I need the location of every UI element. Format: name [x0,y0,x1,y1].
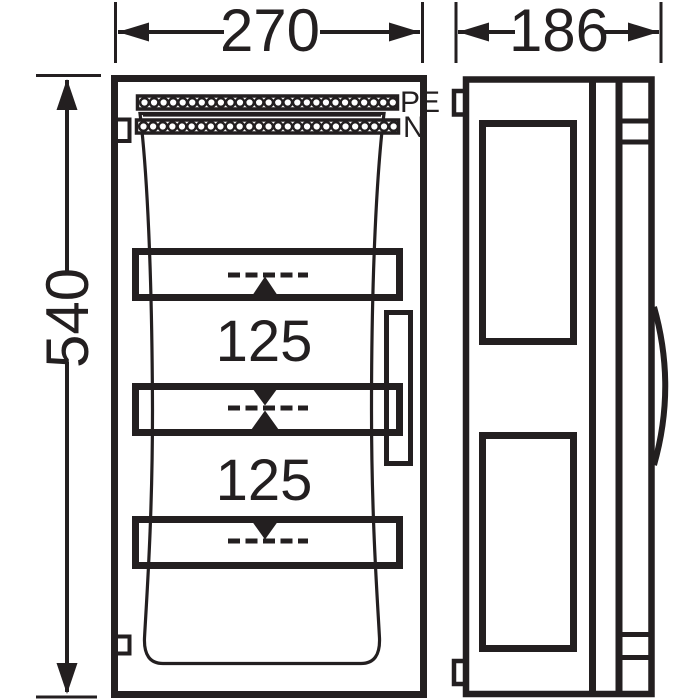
terminal-hole-icon [274,122,283,131]
dimension-value-186: 186 [509,0,609,64]
terminal-hole-icon [350,98,359,107]
terminal-hole-icon [168,122,177,131]
terminal-hole-icon [264,122,273,131]
terminal-hole-icon [283,98,292,107]
terminal-hole-icon [369,98,378,107]
rail-spacing-value-bottom: 125 [216,448,313,513]
terminal-hole-icon [178,122,187,131]
terminal-hole-icon [255,122,264,131]
rail-spacing-value-top: 125 [216,309,313,374]
terminal-hole-icon [235,122,244,131]
arrow-left-icon [458,23,489,42]
side-view [454,80,665,695]
terminal-hole-icon [158,122,167,131]
arrow-down-icon [57,663,78,694]
enclosure-drawing-svg: 270 186 540 [0,0,700,700]
terminal-hole-icon [245,98,254,107]
terminal-hole-icon [303,122,312,131]
dimension-front-width: 270 [116,0,423,64]
side-window-top [483,124,574,342]
terminal-hole-icon [293,122,302,131]
terminal-hole-icon [217,98,226,107]
arrow-down-icon [250,519,280,540]
arrow-left-icon [118,23,149,42]
n-terminal-holes [139,122,398,131]
terminal-hole-icon [216,122,225,131]
terminal-hole-icon [207,98,216,107]
terminal-hole-icon [322,98,331,107]
terminal-hole-icon [370,122,379,131]
terminal-strip-pe [138,96,398,109]
terminal-hole-icon [284,122,293,131]
terminal-hole-icon [150,98,159,107]
terminal-hole-icon [389,98,398,107]
terminal-hole-icon [303,98,312,107]
door-handle [654,307,665,465]
pe-terminal-holes [140,98,397,107]
terminal-hole-icon [274,98,283,107]
terminal-hole-icon [149,122,158,131]
terminal-hole-icon [360,98,369,107]
terminal-hole-icon [332,122,341,131]
terminal-hole-icon [207,122,216,131]
technical-drawing: 270 186 540 [0,0,700,700]
dimension-value-540: 540 [34,268,101,368]
dimension-front-height: 540 [34,76,101,698]
terminal-hole-icon [380,122,389,131]
side-window-bottom [483,436,574,649]
terminal-hole-icon [187,122,196,131]
terminal-hole-icon [312,98,321,107]
terminal-hole-icon [188,98,197,107]
terminal-hole-icon [341,122,350,131]
arrow-right-icon [389,23,420,42]
dimension-side-depth: 186 [456,0,661,64]
hinge-tab-top [118,120,130,142]
terminal-hole-icon [351,122,360,131]
terminal-hole-icon [360,122,369,131]
terminal-hole-icon [159,98,168,107]
side-body-outline [466,80,652,695]
terminal-hole-icon [312,122,321,131]
terminal-hole-icon [245,122,254,131]
terminal-hole-icon [379,98,388,107]
front-view: PE N 125 125 [115,79,441,695]
terminal-hole-icon [255,98,264,107]
arrow-down-icon [250,385,280,406]
terminal-hole-icon [322,122,331,131]
arrow-up-icon [250,277,280,300]
terminal-hole-icon [140,98,149,107]
n-label: N [403,111,425,144]
arrow-up-icon [250,411,280,432]
terminal-hole-icon [293,98,302,107]
terminal-hole-icon [331,98,340,107]
terminal-hole-icon [226,122,235,131]
terminal-hole-icon [197,122,206,131]
terminal-hole-icon [198,98,207,107]
terminal-hole-icon [169,98,178,107]
terminal-hole-icon [236,98,245,107]
arrow-up-icon [57,79,78,110]
terminal-hole-icon [178,98,187,107]
hinge-tab-bottom [118,637,130,654]
arrow-right-icon [628,23,659,42]
terminal-hole-icon [264,98,273,107]
terminal-hole-icon [226,98,235,107]
terminal-strip-n [137,120,399,133]
terminal-hole-icon [389,122,398,131]
terminal-hole-icon [139,122,148,131]
dimension-value-270: 270 [220,0,320,64]
terminal-hole-icon [341,98,350,107]
